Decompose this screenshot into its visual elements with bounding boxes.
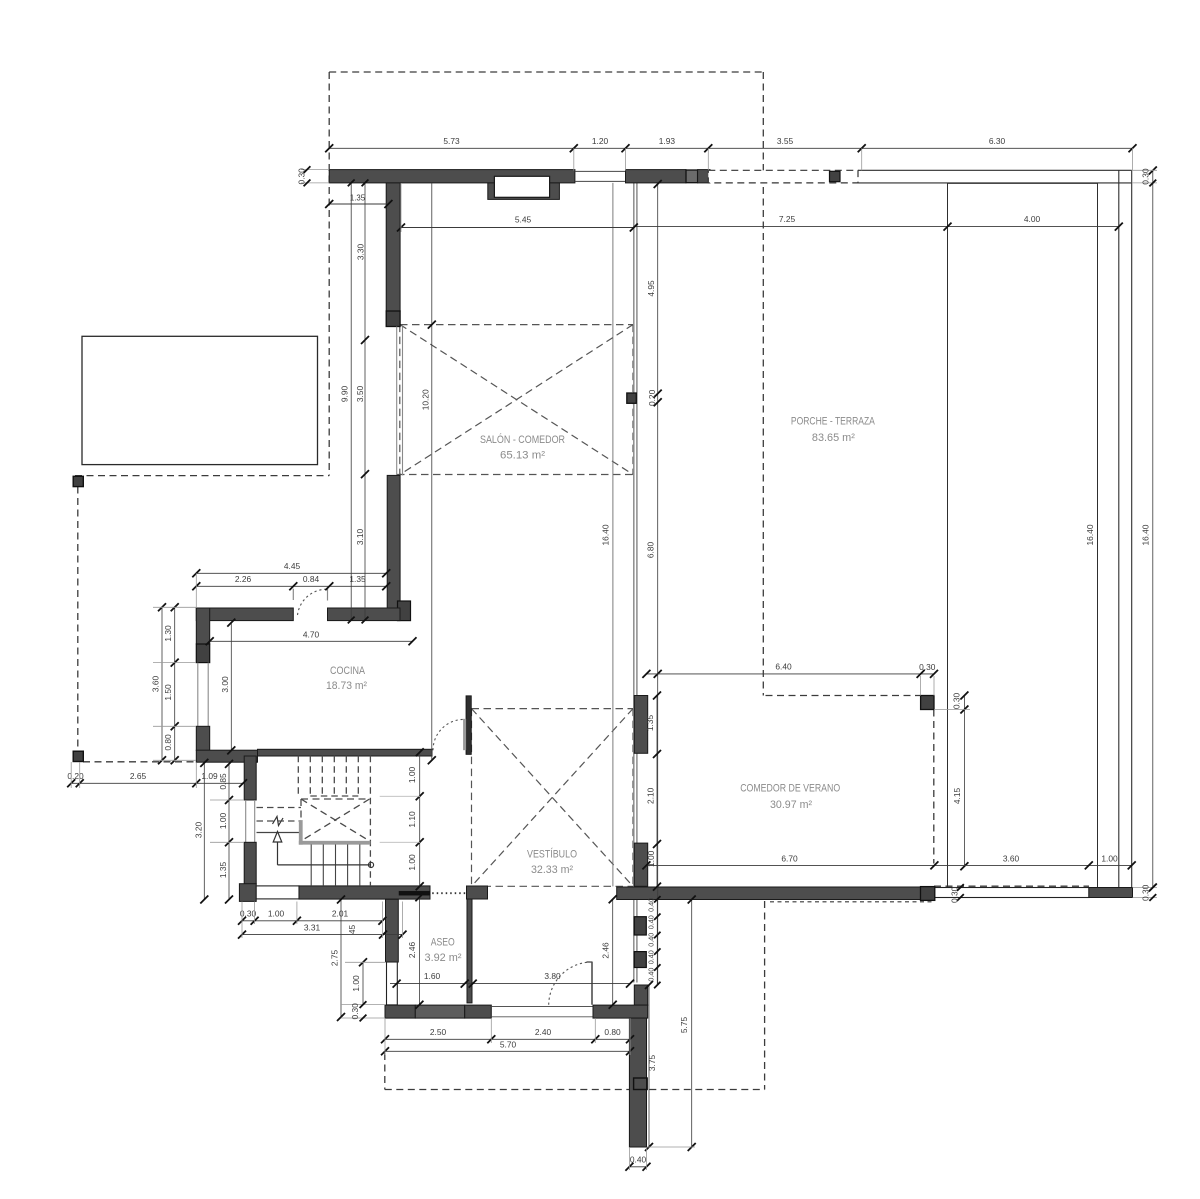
svg-text:4.45: 4.45	[284, 561, 301, 571]
svg-text:0.80: 0.80	[163, 734, 173, 751]
svg-text:1.00: 1.00	[407, 767, 417, 784]
svg-text:4.00: 4.00	[1024, 214, 1041, 224]
svg-text:16.40: 16.40	[601, 524, 611, 545]
svg-text:3.10: 3.10	[355, 529, 365, 546]
svg-text:0.40: 0.40	[647, 933, 656, 947]
svg-text:6.30: 6.30	[989, 136, 1006, 146]
svg-text:VESTÍBULO: VESTÍBULO	[527, 847, 577, 860]
svg-text:3.60: 3.60	[1003, 853, 1020, 863]
svg-text:1.35: 1.35	[218, 862, 228, 879]
svg-text:0.85: 0.85	[218, 773, 228, 790]
svg-text:2.26: 2.26	[235, 574, 252, 584]
svg-text:0.30: 0.30	[297, 168, 307, 185]
svg-text:1.60: 1.60	[424, 971, 441, 981]
svg-text:2.46: 2.46	[407, 942, 417, 959]
svg-text:1.30: 1.30	[163, 625, 173, 642]
svg-text:0.30: 0.30	[951, 693, 961, 710]
svg-text:7.25: 7.25	[779, 214, 796, 224]
svg-text:1.00: 1.00	[218, 813, 228, 830]
svg-text:18.73 m²: 18.73 m²	[326, 680, 367, 692]
svg-text:1.00: 1.00	[646, 850, 656, 867]
svg-text:4.95: 4.95	[646, 280, 656, 297]
svg-text:6.70: 6.70	[781, 853, 798, 863]
svg-text:3.60: 3.60	[151, 676, 161, 693]
svg-text:1.35: 1.35	[350, 193, 366, 202]
svg-text:2.65: 2.65	[130, 771, 147, 781]
svg-text:3.30: 3.30	[356, 244, 366, 261]
svg-text:1.35: 1.35	[645, 715, 655, 732]
svg-text:1.00: 1.00	[407, 854, 417, 871]
svg-text:1.35: 1.35	[349, 574, 366, 584]
svg-text:3.92 m²: 3.92 m²	[425, 952, 462, 964]
svg-text:0.20: 0.20	[647, 389, 657, 406]
svg-text:45: 45	[347, 925, 357, 935]
svg-text:32.33 m²: 32.33 m²	[531, 864, 573, 876]
svg-text:0.40: 0.40	[647, 915, 656, 929]
svg-text:3.50: 3.50	[355, 386, 365, 403]
svg-text:1.00: 1.00	[1101, 853, 1118, 863]
svg-text:0.30: 0.30	[350, 1003, 360, 1020]
svg-text:1.10: 1.10	[407, 811, 417, 828]
svg-text:6.80: 6.80	[646, 542, 656, 559]
svg-text:6.40: 6.40	[775, 662, 792, 672]
svg-text:0.40: 0.40	[647, 968, 656, 982]
svg-text:0.30: 0.30	[949, 886, 959, 903]
svg-text:1.93: 1.93	[659, 136, 676, 146]
svg-text:3.31: 3.31	[304, 923, 321, 933]
svg-text:2.10: 2.10	[645, 787, 655, 804]
svg-text:2.50: 2.50	[430, 1027, 447, 1037]
svg-text:0.20: 0.20	[67, 771, 84, 781]
svg-text:3.75: 3.75	[647, 1055, 657, 1072]
svg-text:2.01: 2.01	[332, 909, 349, 919]
svg-text:ASEO: ASEO	[431, 936, 455, 948]
svg-text:5.73: 5.73	[443, 136, 460, 146]
svg-text:2.75: 2.75	[329, 950, 339, 967]
svg-text:0.84: 0.84	[303, 574, 320, 584]
svg-text:0.40: 0.40	[647, 898, 656, 912]
svg-text:4.70: 4.70	[303, 630, 320, 640]
svg-text:0.30: 0.30	[1141, 884, 1151, 901]
svg-text:1.00: 1.00	[268, 909, 285, 919]
svg-text:3.55: 3.55	[777, 136, 794, 146]
svg-text:83.65 m²: 83.65 m²	[812, 432, 855, 444]
svg-text:5.45: 5.45	[515, 215, 532, 225]
svg-text:1.00: 1.00	[351, 975, 361, 992]
svg-text:0.80: 0.80	[604, 1027, 621, 1037]
svg-text:COCINA: COCINA	[330, 665, 366, 677]
svg-text:5.75: 5.75	[679, 1017, 689, 1034]
svg-text:0.40: 0.40	[630, 1155, 647, 1165]
svg-text:2.40: 2.40	[535, 1027, 552, 1037]
svg-text:30.97 m²: 30.97 m²	[770, 799, 812, 811]
svg-text:65.13 m²: 65.13 m²	[500, 449, 545, 461]
svg-text:10.20: 10.20	[421, 389, 431, 410]
svg-text:9.90: 9.90	[339, 386, 349, 403]
svg-text:PORCHE - TERRAZA: PORCHE - TERRAZA	[791, 416, 876, 428]
svg-text:0.40: 0.40	[647, 950, 656, 964]
svg-text:5.70: 5.70	[500, 1040, 517, 1050]
svg-text:COMEDOR DE VERANO: COMEDOR DE VERANO	[740, 782, 840, 794]
svg-text:SALÓN - COMEDOR: SALÓN - COMEDOR	[480, 433, 565, 446]
svg-text:1.20: 1.20	[592, 136, 609, 146]
svg-text:1.09: 1.09	[201, 771, 218, 781]
svg-text:3.20: 3.20	[194, 822, 204, 839]
svg-text:3.00: 3.00	[220, 676, 230, 693]
svg-text:1.50: 1.50	[163, 684, 173, 701]
svg-text:0.30: 0.30	[1141, 168, 1151, 185]
svg-text:3.80: 3.80	[544, 971, 561, 981]
svg-text:16.40: 16.40	[1085, 524, 1095, 545]
svg-text:2.46: 2.46	[601, 942, 611, 959]
svg-text:4.15: 4.15	[952, 788, 962, 805]
svg-text:0.30: 0.30	[919, 662, 936, 672]
svg-text:16.40: 16.40	[1141, 524, 1151, 545]
